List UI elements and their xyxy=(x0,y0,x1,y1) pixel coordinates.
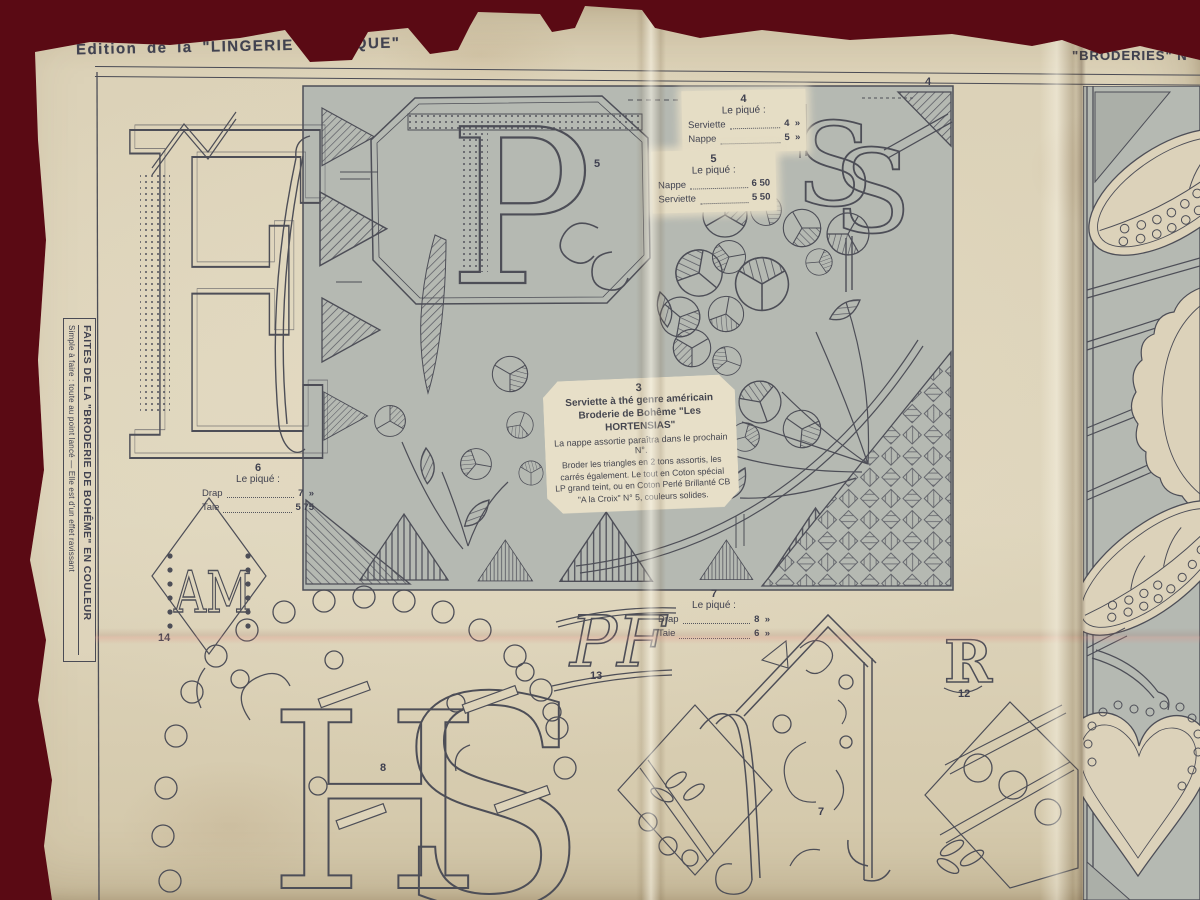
side-label-subtitle: Simple à faire : toute au point lancé — … xyxy=(67,325,78,655)
serviette-panel: P S S xyxy=(303,83,953,590)
gothic-r-monogram: R xyxy=(944,628,993,696)
design-label-4: 4 xyxy=(925,76,931,88)
design-label-8: 8 xyxy=(380,762,386,774)
design-label-5: 5 xyxy=(594,158,600,170)
side-label-title: FAITES DE LA "BRODERIE DE BOHÊME" EN COU… xyxy=(78,325,93,655)
dot-leader xyxy=(223,512,291,513)
price-box-7: 7 Le piqué : Drap8 » Taie6 » xyxy=(658,588,770,642)
right-page-panel xyxy=(1051,86,1200,900)
page-border xyxy=(97,72,99,900)
price-label: Drap xyxy=(202,487,223,501)
price-row: Serviette5 50 xyxy=(658,191,770,208)
design-number: 7 xyxy=(658,588,770,600)
price-box-6: 6 Le piqué : Drap7 » Taie5 75 xyxy=(202,462,314,516)
newspaper-sheet: P S S xyxy=(0,0,1200,900)
design-label-14: 14 xyxy=(158,632,170,644)
price-value: 4 » xyxy=(784,117,800,132)
hs-medallion: H S xyxy=(152,586,591,900)
price-value: 7 » xyxy=(298,487,314,501)
side-label-box: FAITES DE LA "BRODERIE DE BOHÊME" EN COU… xyxy=(63,318,96,662)
dot-leader xyxy=(720,142,780,144)
dot-leader xyxy=(679,638,750,639)
price-row: Drap7 » xyxy=(202,487,314,501)
price-label: Nappe xyxy=(658,179,686,194)
photo-of-embroidery-pattern-sheet: P S S xyxy=(0,0,1200,900)
am-letters: AM xyxy=(173,561,251,627)
s-letter-large: S xyxy=(392,637,591,900)
price-label: Taie xyxy=(658,627,675,641)
octagon-letter: P xyxy=(448,83,593,334)
dot-leader xyxy=(683,623,751,624)
price-title: Le piqué : xyxy=(202,474,314,485)
price-title: Le piqué : xyxy=(688,104,800,117)
dot-leader xyxy=(227,497,295,498)
price-value: 8 » xyxy=(754,613,770,627)
price-row: Taie5 75 xyxy=(202,501,314,515)
price-label: Serviette xyxy=(688,118,726,133)
r-letter: R xyxy=(944,628,993,696)
dot-leader xyxy=(690,187,748,190)
price-title: Le piqué : xyxy=(658,600,770,611)
design-label-12: 12 xyxy=(958,688,970,700)
design-label-13: 13 xyxy=(590,670,602,682)
price-value: 6 50 xyxy=(751,177,770,192)
price-label: Nappe xyxy=(688,133,716,148)
price-title: Le piqué : xyxy=(658,164,770,178)
price-row: Nappe5 » xyxy=(688,131,800,148)
price-value: 6 » xyxy=(754,627,770,641)
price-label: Serviette xyxy=(658,193,696,208)
price-label: Drap xyxy=(658,613,679,627)
price-value: 5 50 xyxy=(752,191,771,206)
dot-leader xyxy=(700,202,748,204)
description-box: 3 Serviette à thé genre américain Broder… xyxy=(542,374,739,514)
price-row: Taie6 » xyxy=(658,627,770,641)
price-value: 5 75 xyxy=(296,501,315,515)
gothic-letter-design xyxy=(618,615,1078,894)
price-label: Taie xyxy=(202,501,219,515)
design-number: 6 xyxy=(202,462,314,474)
price-value: 5 » xyxy=(784,131,800,146)
pf-letters: PF xyxy=(568,601,668,683)
dot-leader xyxy=(730,127,781,129)
design-label-7: 7 xyxy=(818,806,824,818)
price-box-5: 5 Le piqué : Nappe6 50 Serviette5 50 xyxy=(651,148,777,213)
price-box-4: 4 Le piqué : Serviette4 » Nappe5 » xyxy=(681,89,806,153)
description-body: Broder les triangles en 2 tons assortis,… xyxy=(554,453,732,507)
price-row: Drap8 » xyxy=(658,613,770,627)
